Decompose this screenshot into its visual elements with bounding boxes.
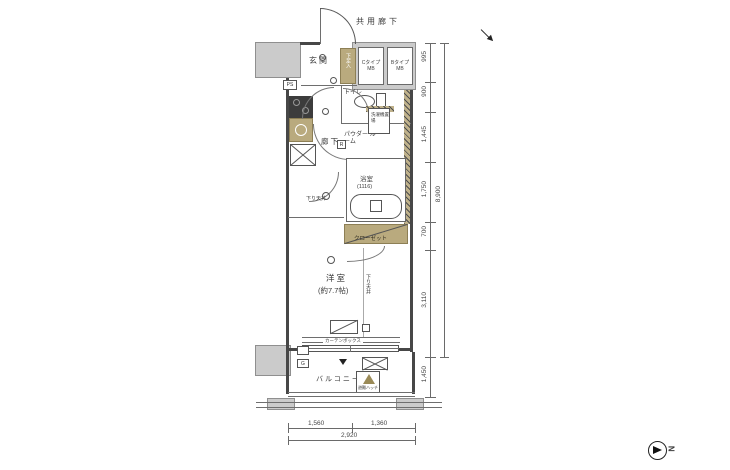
meter-box-b-type: Bタイプ MB — [387, 47, 413, 85]
g-badge: G — [297, 359, 309, 368]
common-corridor-label: 共用廊下 — [356, 17, 400, 27]
furniture-rect — [330, 320, 358, 334]
partition-room-top-left — [288, 217, 344, 218]
ceiling-light-symbol — [327, 256, 335, 264]
dim-tick — [440, 43, 449, 44]
wall-outer-right — [410, 90, 413, 352]
footing-left — [267, 398, 295, 410]
floorplan-canvas: 共用廊下 Cタイプ MB Bタイプ MB 玄関 下足入 トイレ PS — [0, 0, 730, 470]
dim-line-right-total — [444, 43, 445, 357]
kitchen-counter — [289, 118, 313, 142]
dim-bottom-total-2920: 2,920 — [341, 432, 357, 439]
sink-icon — [295, 124, 307, 136]
dim-right-700: 700 — [421, 226, 428, 237]
ground-line1 — [256, 402, 442, 403]
ps-badge-label: PS — [287, 82, 294, 88]
washer-space: 洗濯機置場 — [368, 108, 390, 134]
powder-room-label: パウダー ルーム — [344, 132, 378, 146]
dim-tick — [425, 162, 436, 163]
dim-tick — [288, 436, 289, 445]
footing-right — [396, 398, 424, 410]
ceiling-light-symbol — [322, 192, 330, 200]
shoe-cabinet: 下足入 — [340, 48, 356, 84]
g-badge-label: G — [301, 361, 305, 367]
wall-top-entrance-left — [300, 42, 320, 45]
western-room-size-label: (約7.7帖) — [318, 286, 348, 295]
washer-space-label: 洗濯機置場 — [371, 112, 389, 125]
compass-icon — [648, 441, 667, 460]
furniture-diagonal — [330, 320, 358, 334]
entrance-door-arc — [320, 8, 356, 44]
dim-line-bottom-total — [288, 440, 415, 441]
dim-tick — [415, 423, 416, 433]
dim-tick — [425, 82, 436, 83]
western-room-label: 洋室 — [326, 273, 347, 283]
partition-toilet-left — [341, 86, 342, 124]
dim-right-1750: 1,750 — [421, 181, 428, 197]
burner-icon — [293, 99, 300, 106]
refrigerator-space — [290, 144, 316, 166]
evacuation-hatch-label: 避難ハッチ — [358, 386, 378, 391]
dim-tick — [425, 112, 436, 113]
dim-tick — [288, 423, 289, 433]
balcony-wall-right — [412, 352, 415, 394]
closet-label: クローゼット — [354, 236, 387, 243]
hall-door-arc-upper — [302, 87, 334, 119]
compass-north-label: N — [666, 446, 676, 452]
closet: クローゼット — [344, 224, 408, 244]
ceiling-light-symbol — [319, 54, 326, 61]
mb-left-mb: MB — [367, 66, 375, 73]
ground-line2 — [256, 407, 442, 408]
dim-bottom-1560: 1,560 — [308, 420, 324, 427]
dim-tick — [425, 43, 436, 44]
dim-tick — [425, 222, 436, 223]
balcony-rail-line2 — [288, 396, 415, 397]
dim-right-1450: 1,450 — [421, 366, 428, 382]
balcony-rail-line1 — [288, 392, 415, 393]
outlet-box — [362, 324, 370, 332]
dim-tick — [440, 357, 449, 358]
mb-right-mb: MB — [396, 66, 404, 73]
evacuation-hatch: 避難ハッチ — [356, 371, 380, 393]
dim-right-3110: 3,110 — [421, 292, 428, 308]
dim-right-900: 900 — [421, 86, 428, 97]
ceiling-light-symbol — [330, 77, 337, 84]
balcony-wall-left — [286, 352, 289, 394]
entrance-marker-triangle — [339, 359, 347, 365]
dim-tick — [425, 397, 436, 398]
hatch-triangle-outline — [363, 374, 375, 384]
dim-right-total-8900: 8,900 — [435, 186, 442, 202]
dim-tick — [425, 250, 436, 251]
curtain-box-label: カーテンボックス — [323, 338, 363, 343]
dim-line-right-inner — [430, 43, 431, 397]
tub-drain — [370, 200, 382, 212]
ac-outdoor-unit-space — [362, 357, 388, 370]
dim-right-1445: 1,445 — [421, 126, 428, 142]
sliding-window-center — [350, 345, 351, 352]
meter-box-c-type: Cタイプ MB — [358, 47, 384, 85]
partition-entrance-bottom — [301, 85, 357, 86]
bathroom-module-label: (1116) — [357, 184, 372, 191]
lowered-ceiling-right-label: 下り天井 — [365, 274, 371, 294]
compass-arrow-icon — [653, 446, 662, 454]
bathroom-label: 浴室 — [360, 176, 373, 184]
dim-tick — [415, 436, 416, 445]
dim-tick — [425, 357, 436, 358]
dim-bottom-1360: 1,360 — [371, 420, 387, 427]
dim-right-995: 995 — [421, 51, 428, 62]
balcony-label: バルコニー — [316, 376, 361, 384]
shoe-cabinet-label: 下足入 — [345, 53, 351, 68]
neighbor-wall-top-left — [255, 42, 301, 78]
north-tick-arrowhead — [487, 35, 495, 43]
ceiling-light-symbol — [322, 108, 329, 115]
ps-badge: PS — [283, 80, 297, 90]
legend-box — [297, 346, 309, 355]
closet-door-arc — [347, 246, 385, 262]
